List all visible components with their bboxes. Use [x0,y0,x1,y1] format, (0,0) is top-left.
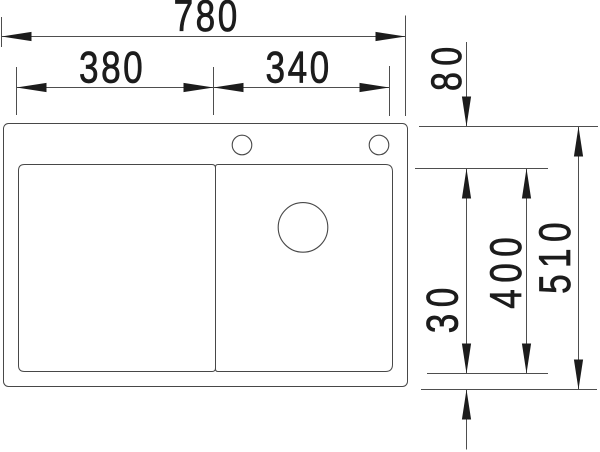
svg-text:400: 400 [482,231,531,309]
svg-text:340: 340 [265,44,331,93]
svg-text:30: 30 [419,281,468,333]
svg-text:80: 80 [423,40,471,91]
svg-text:780: 780 [174,0,240,41]
svg-text:380: 380 [79,43,145,92]
svg-text:510: 510 [531,216,580,294]
